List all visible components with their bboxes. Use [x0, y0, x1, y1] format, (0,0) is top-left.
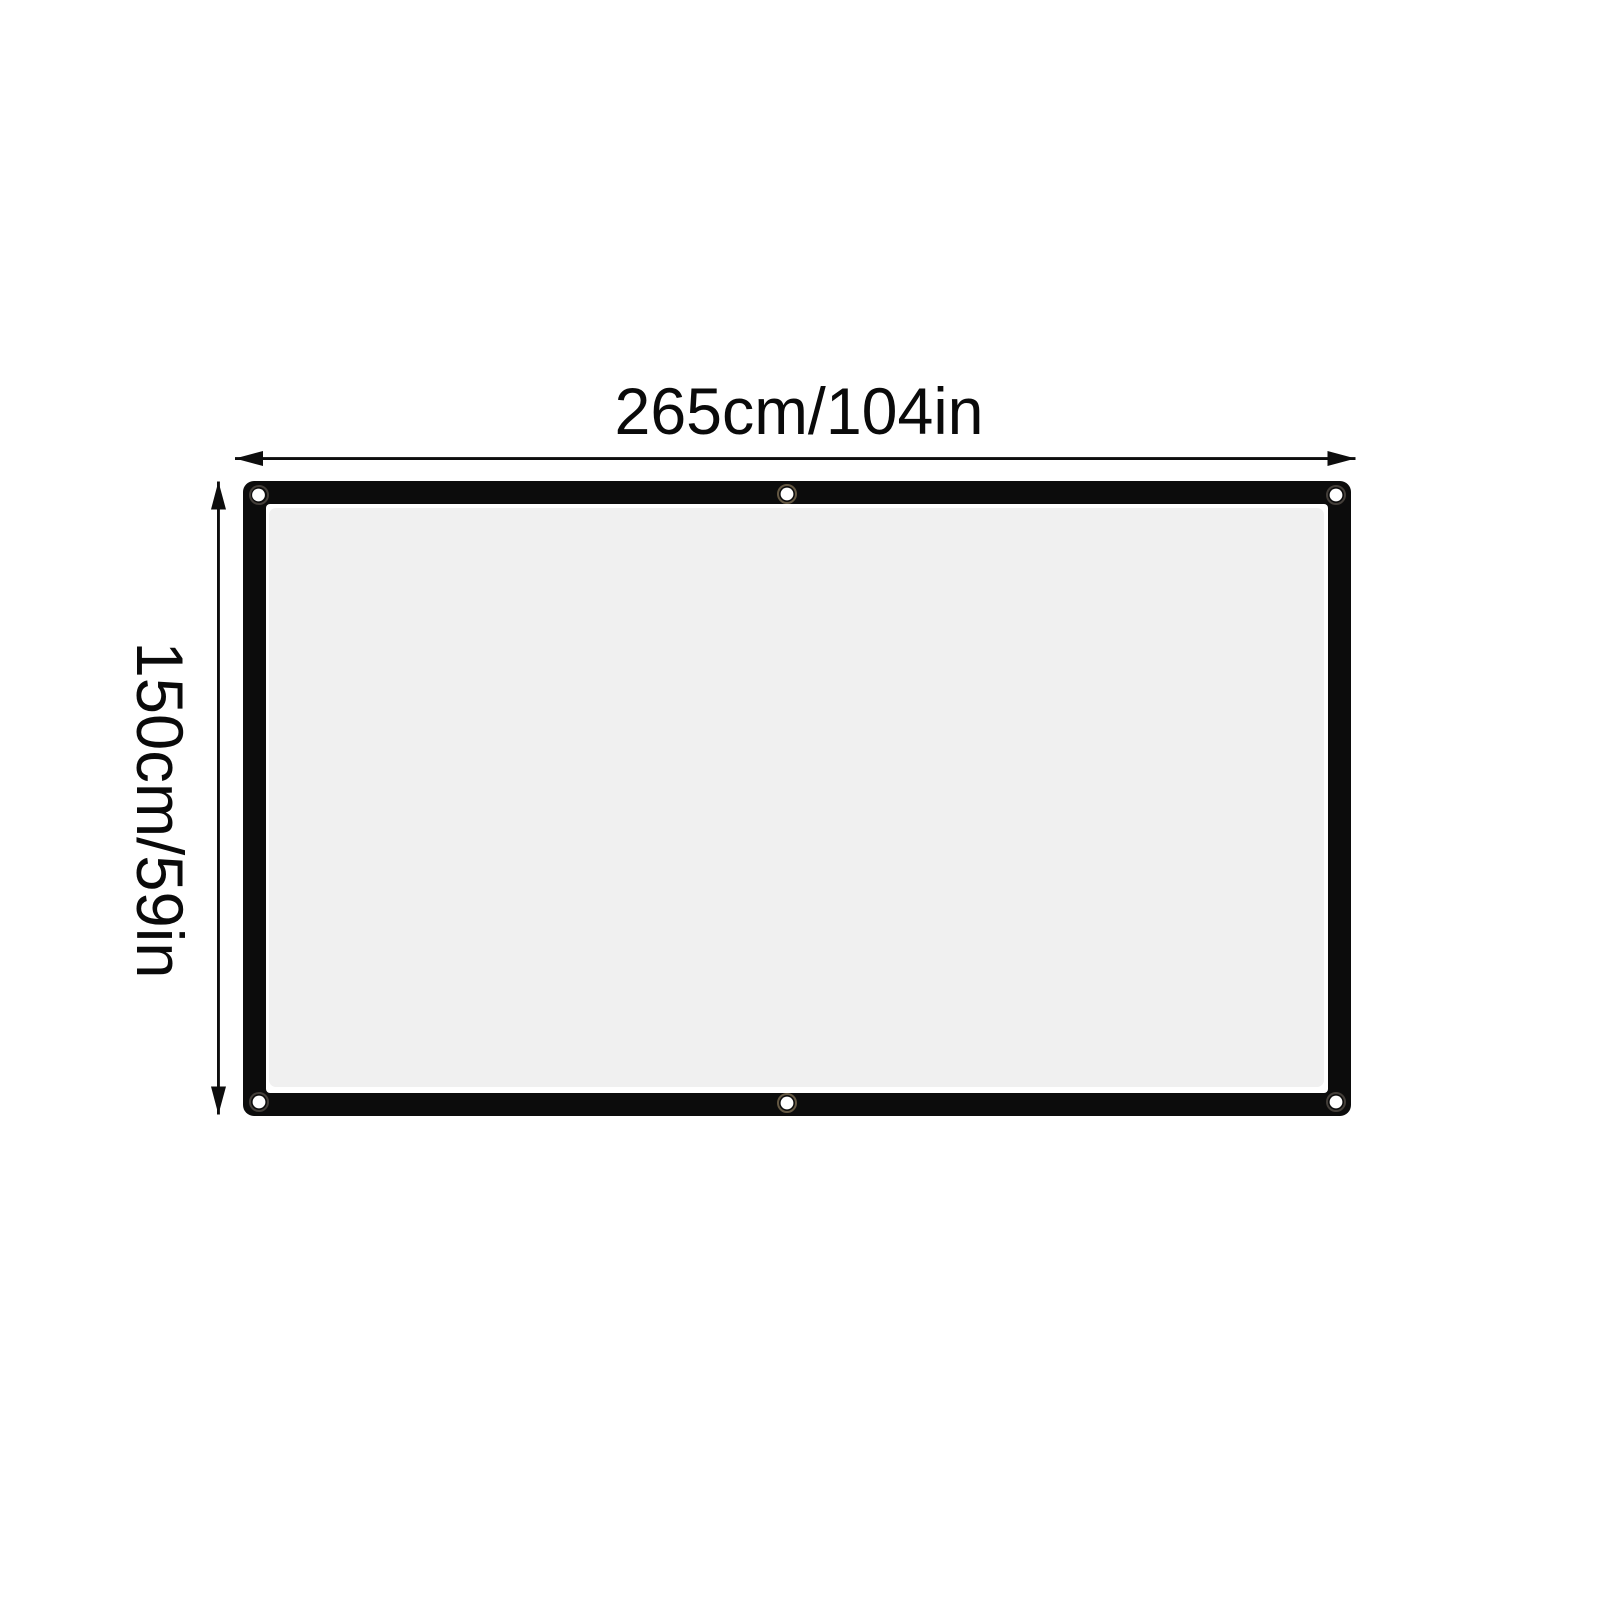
svg-text:265cm/104in: 265cm/104in — [615, 374, 984, 448]
svg-text:150cm/59in: 150cm/59in — [123, 642, 197, 979]
